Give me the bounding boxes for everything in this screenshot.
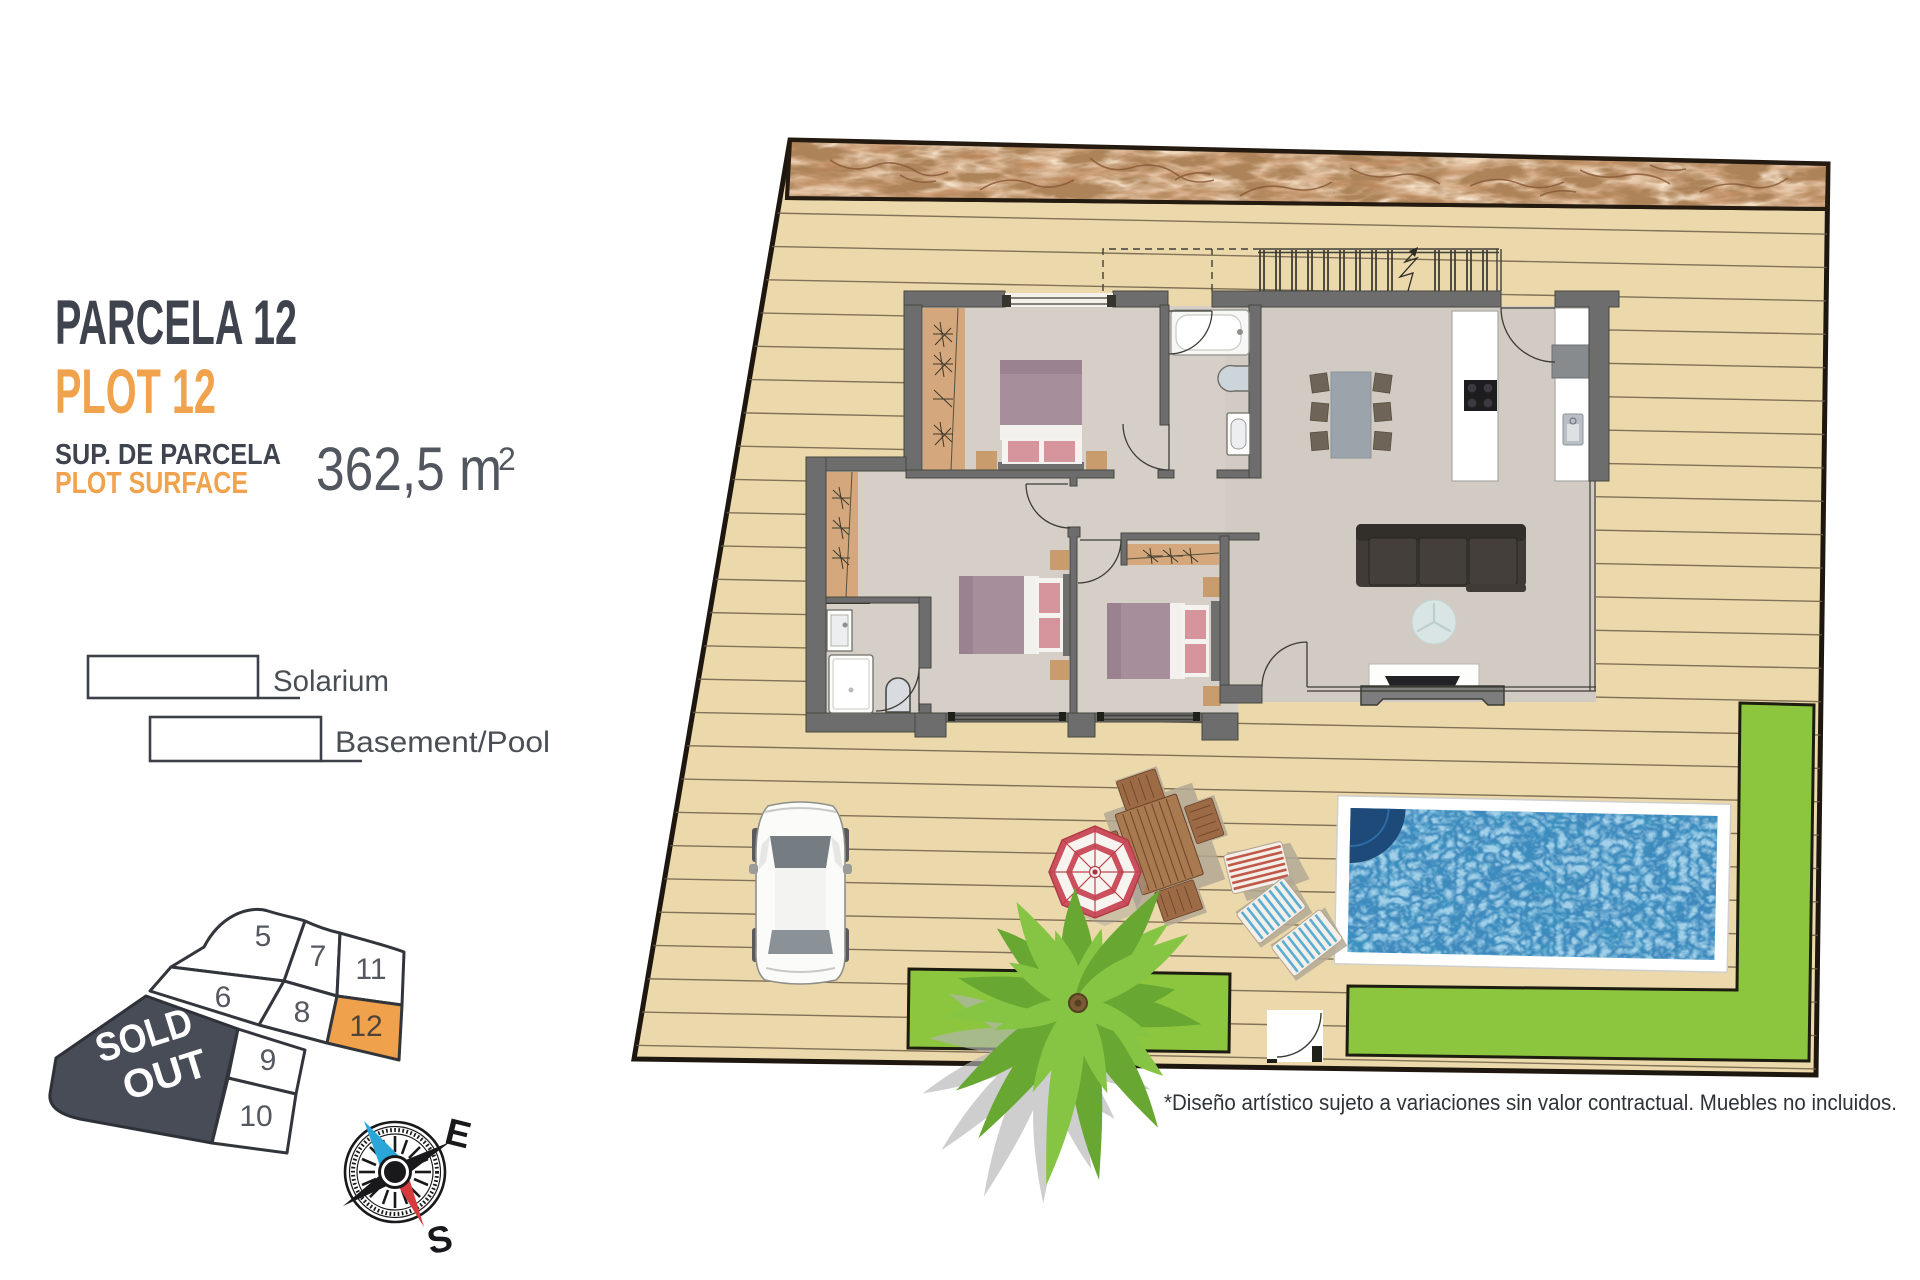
svg-text:10: 10 [239, 1100, 272, 1133]
svg-text:5: 5 [255, 920, 272, 953]
svg-text:8: 8 [294, 996, 311, 1029]
svg-text:7: 7 [310, 940, 327, 973]
svg-text:2: 2 [498, 441, 516, 477]
svg-text:PLOT SURFACE: PLOT SURFACE [55, 465, 248, 500]
svg-text:12: 12 [349, 1010, 382, 1043]
svg-text:9: 9 [260, 1044, 277, 1077]
svg-text:11: 11 [355, 953, 386, 986]
svg-text:362,5 m: 362,5 m [316, 435, 502, 503]
svg-text:PLOT 12: PLOT 12 [55, 357, 216, 427]
svg-text:6: 6 [215, 981, 232, 1014]
svg-text:Solarium: Solarium [273, 665, 389, 698]
svg-text:PARCELA 12: PARCELA 12 [55, 288, 297, 358]
svg-text:Basement/Pool: Basement/Pool [335, 726, 550, 759]
svg-text:*Diseño artístico sujeto a var: *Diseño artístico sujeto a variaciones s… [1164, 1090, 1897, 1115]
